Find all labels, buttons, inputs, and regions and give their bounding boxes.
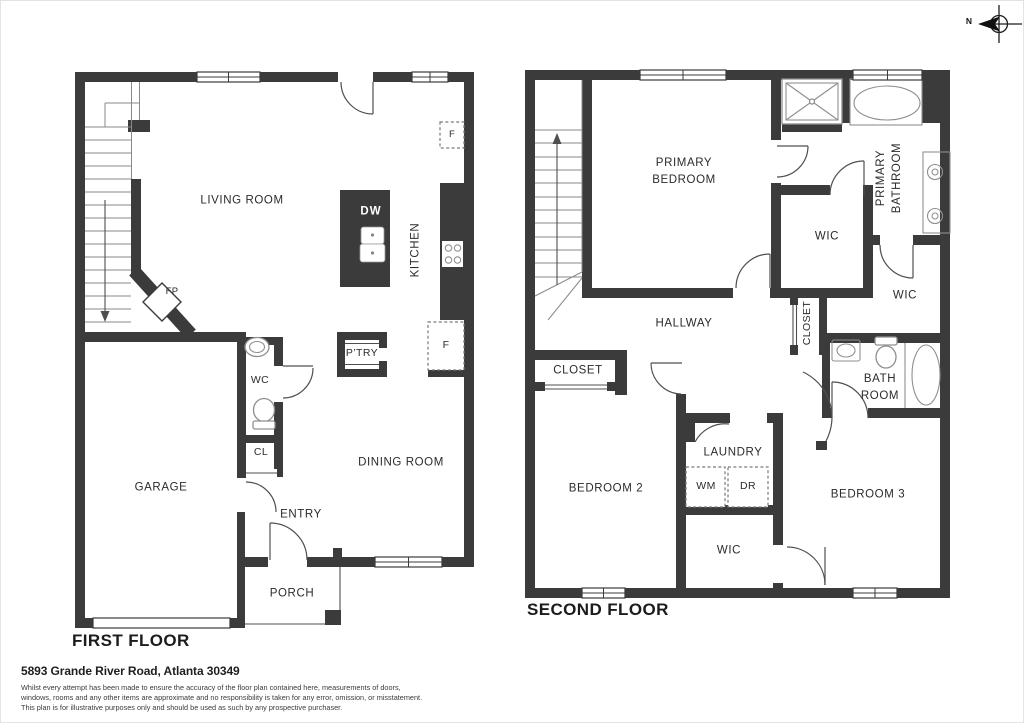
label-washer: WM <box>696 481 715 493</box>
primary-bathtub <box>850 79 922 125</box>
label-primary-bedroom-line1: PRIMARY <box>652 155 716 172</box>
hall-bath-toilet <box>875 337 897 368</box>
label-primary-bedroom: PRIMARY BEDROOM <box>652 155 716 189</box>
porch-post <box>325 610 341 625</box>
label-closet-hall: CLOSET <box>802 301 814 345</box>
wc-toilet <box>253 399 275 430</box>
garage-door <box>93 618 230 628</box>
label-wc: WC <box>251 375 269 387</box>
window <box>582 588 625 598</box>
disclaimer-line-1: Whilst every attempt has been made to en… <box>21 683 422 693</box>
label-primary-bedroom-line2: BEDROOM <box>652 172 716 189</box>
door-swing <box>283 366 313 398</box>
fireplace <box>134 271 191 334</box>
kitchen-island <box>340 190 390 287</box>
label-dining-room: DINING ROOM <box>358 457 444 470</box>
label-bedroom-2: BEDROOM 2 <box>569 483 643 496</box>
north-arrow-icon <box>978 5 1022 43</box>
label-primary-bathroom: PRIMARY BATHROOM <box>873 143 905 213</box>
label-wic-primary: WIC <box>815 231 839 244</box>
window <box>412 72 448 82</box>
door-swing <box>777 146 808 177</box>
bedroom2-closet-door <box>545 385 607 389</box>
door-swing <box>695 424 729 442</box>
floor-plan-drawing <box>0 0 1024 723</box>
floor-plan-page: LIVING ROOM KITCHEN DW F F P’TRY WC CL G… <box>0 0 1024 723</box>
stair-direction-arrow-up <box>553 133 562 285</box>
label-primary-bathroom-line1: PRIMARY <box>873 143 889 213</box>
label-wic-bottom: WIC <box>717 545 741 558</box>
label-living-room: LIVING ROOM <box>200 195 283 208</box>
door-swing <box>880 245 913 278</box>
disclaimer-line-3: This plan is for illustrative purposes o… <box>21 703 422 713</box>
disclaimer-line-2: windows, rooms and any other items are a… <box>21 693 422 703</box>
label-fridge-lower: F <box>443 340 450 352</box>
front-door-swing <box>268 523 307 568</box>
label-fireplace: FP <box>166 287 179 297</box>
window <box>853 588 897 598</box>
label-pantry: P’TRY <box>346 348 378 360</box>
hall-bathtub <box>905 343 940 408</box>
label-bath-line2: ROOM <box>861 388 899 405</box>
door-swing <box>736 254 770 288</box>
label-garage: GARAGE <box>135 482 188 495</box>
label-wic-hall: WIC <box>893 290 917 303</box>
property-address: 5893 Grande River Road, Atlanta 30349 <box>21 664 240 678</box>
label-hallway: HALLWAY <box>655 318 712 331</box>
label-bath-room: BATH ROOM <box>861 371 899 405</box>
label-bedroom-3: BEDROOM 3 <box>831 489 905 502</box>
label-kitchen: KITCHEN <box>410 223 423 278</box>
window <box>375 557 442 567</box>
label-laundry: LAUNDRY <box>704 447 763 460</box>
disclaimer-text: Whilst every attempt has been made to en… <box>21 683 422 713</box>
label-porch: PORCH <box>270 588 315 601</box>
label-primary-bathroom-line2: BATHROOM <box>889 143 905 213</box>
kitchen-counter <box>440 183 464 320</box>
window <box>197 72 260 82</box>
hall-closet-door <box>793 305 797 345</box>
wc-sink <box>245 338 269 357</box>
label-closet-bedroom2: CLOSET <box>553 365 603 378</box>
first-floor-doors <box>246 71 373 568</box>
shower <box>782 79 842 124</box>
first-floor-plan <box>75 71 474 628</box>
island-sink <box>360 227 385 262</box>
first-floor-title: FIRST FLOOR <box>72 631 190 651</box>
door-swing <box>338 71 373 114</box>
hall-bath-sink <box>832 340 860 361</box>
second-floor-title: SECOND FLOOR <box>527 600 669 620</box>
door-swing <box>651 363 682 394</box>
stove <box>442 241 463 267</box>
label-dishwasher: DW <box>360 206 381 219</box>
compass-north-label: N <box>966 16 972 26</box>
label-dryer: DR <box>740 481 756 493</box>
stairs-second-floor <box>535 80 582 320</box>
label-bath-line1: BATH <box>861 371 899 388</box>
window <box>853 70 922 80</box>
door-swing <box>787 547 825 585</box>
window <box>640 70 726 80</box>
label-entry: ENTRY <box>280 509 322 522</box>
door-swing <box>246 482 276 512</box>
label-closet: CL <box>254 447 268 459</box>
label-fridge-upper: F <box>449 130 455 140</box>
